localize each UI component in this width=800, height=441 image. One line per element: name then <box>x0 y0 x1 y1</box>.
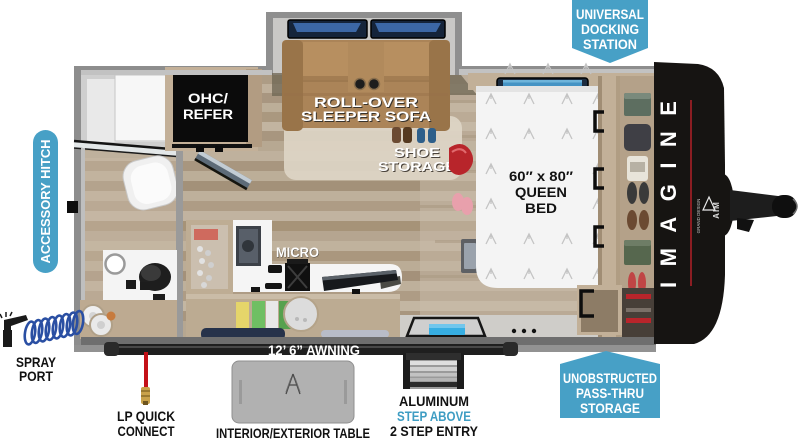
svg-text:2 STEP ENTRY: 2 STEP ENTRY <box>390 423 479 439</box>
svg-text:SHOE: SHOE <box>394 145 440 160</box>
svg-text:STEP ABOVE: STEP ABOVE <box>397 408 471 424</box>
svg-text:DOCKING: DOCKING <box>581 22 639 37</box>
svg-text:ROLL-OVER: ROLL-OVER <box>314 95 418 110</box>
svg-text:LP QUICK: LP QUICK <box>117 408 175 424</box>
svg-text:PASS-THRU: PASS-THRU <box>576 386 644 401</box>
svg-text:ACCESSORY HITCH: ACCESSORY HITCH <box>38 140 53 264</box>
svg-text:QUEEN: QUEEN <box>515 185 567 200</box>
svg-text:CONNECT: CONNECT <box>118 423 175 439</box>
svg-text:12’ 6” AWNING: 12’ 6” AWNING <box>268 343 360 358</box>
svg-text:UNIVERSAL: UNIVERSAL <box>576 7 644 22</box>
svg-text:60″ x 80″: 60″ x 80″ <box>509 169 574 184</box>
svg-text:REFER: REFER <box>183 107 233 122</box>
svg-text:AIM: AIM <box>712 201 721 219</box>
svg-text:STATION: STATION <box>583 37 637 52</box>
svg-text:ALUMINUM: ALUMINUM <box>399 393 469 409</box>
svg-text:GRAND DESIGN: GRAND DESIGN <box>696 199 701 234</box>
svg-text:BED: BED <box>525 201 557 216</box>
svg-text:MICRO: MICRO <box>276 244 319 260</box>
svg-text:PORT: PORT <box>19 368 53 384</box>
svg-text:INTERIOR/EXTERIOR TABLE: INTERIOR/EXTERIOR TABLE <box>216 425 370 441</box>
svg-text:UNOBSTRUCTED: UNOBSTRUCTED <box>563 371 657 386</box>
svg-text:STORAGE: STORAGE <box>580 401 640 416</box>
svg-text:SLEEPER SOFA: SLEEPER SOFA <box>301 109 431 124</box>
svg-text:OHC/: OHC/ <box>188 91 228 106</box>
svg-text:STORAGE: STORAGE <box>378 159 456 174</box>
